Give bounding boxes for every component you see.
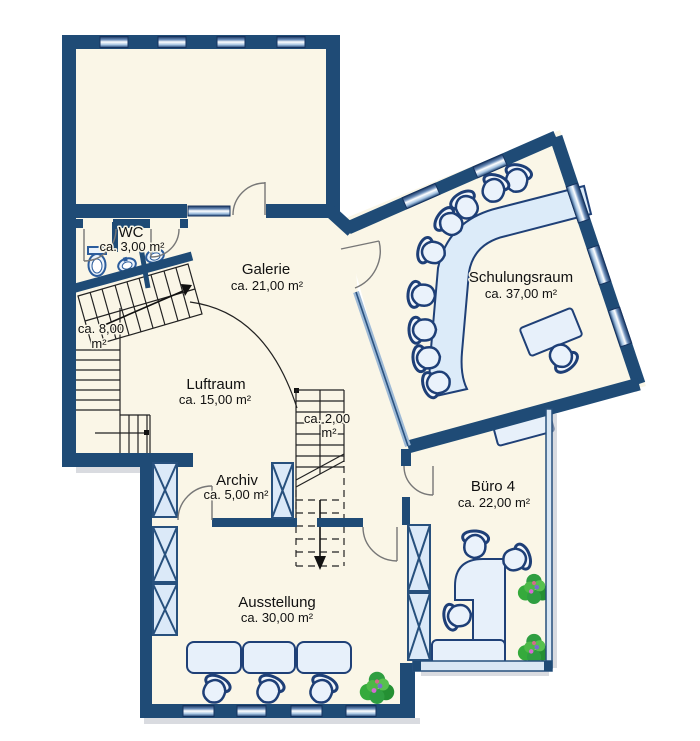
x-panel — [272, 463, 293, 518]
room-label-schulungsraum: Schulungsraum — [469, 269, 573, 286]
buero4-bottom-glass-wall — [413, 661, 552, 671]
window — [158, 37, 186, 48]
exhibit-table — [243, 642, 295, 673]
room-label-luftraum: Luftraum — [186, 376, 245, 393]
x-panel — [408, 593, 430, 660]
exhibit-table — [297, 642, 351, 673]
window — [237, 706, 266, 717]
buero4-right-glass-wall — [546, 409, 552, 668]
window — [183, 706, 214, 717]
floor-plan-drawing: WC ca. 3,00 m² Galerie ca. 21,00 m² Schu… — [0, 0, 700, 741]
room-area-stair8-line1: ca. 8,00 — [78, 321, 124, 336]
x-panel — [153, 584, 177, 635]
room-area-buero4: ca. 22,00 m² — [458, 495, 531, 510]
window — [291, 706, 322, 717]
exhibit-table — [187, 642, 241, 673]
room-area-ausstellung: ca. 30,00 m² — [241, 610, 314, 625]
x-panel — [408, 525, 430, 591]
window — [188, 206, 230, 216]
x-panel — [153, 463, 177, 517]
chair-icon — [409, 317, 437, 344]
window — [100, 37, 128, 48]
room-label-buero4: Büro 4 — [471, 478, 515, 495]
floor-plan-page: WC ca. 3,00 m² Galerie ca. 21,00 m² Schu… — [0, 0, 700, 741]
room-area-schulungsraum: ca. 37,00 m² — [485, 286, 558, 301]
window — [277, 37, 305, 48]
room-area-archiv: ca. 5,00 m² — [203, 487, 269, 502]
room-area-stair2-line1: ca. 2,00 — [304, 411, 350, 426]
room-area-wc: ca. 3,00 m² — [99, 239, 165, 254]
room-top-left-floor — [62, 35, 340, 222]
x-panel — [153, 527, 177, 582]
room-area-stair8-line2: m² — [91, 336, 107, 351]
room-area-stair2-line2: m² — [321, 425, 337, 440]
window — [217, 37, 245, 48]
room-area-luftraum: ca. 15,00 m² — [179, 392, 252, 407]
room-label-ausstellung: Ausstellung — [238, 594, 316, 611]
room-label-galerie: Galerie — [242, 261, 290, 278]
window — [346, 706, 376, 717]
room-area-galerie: ca. 21,00 m² — [231, 278, 304, 293]
